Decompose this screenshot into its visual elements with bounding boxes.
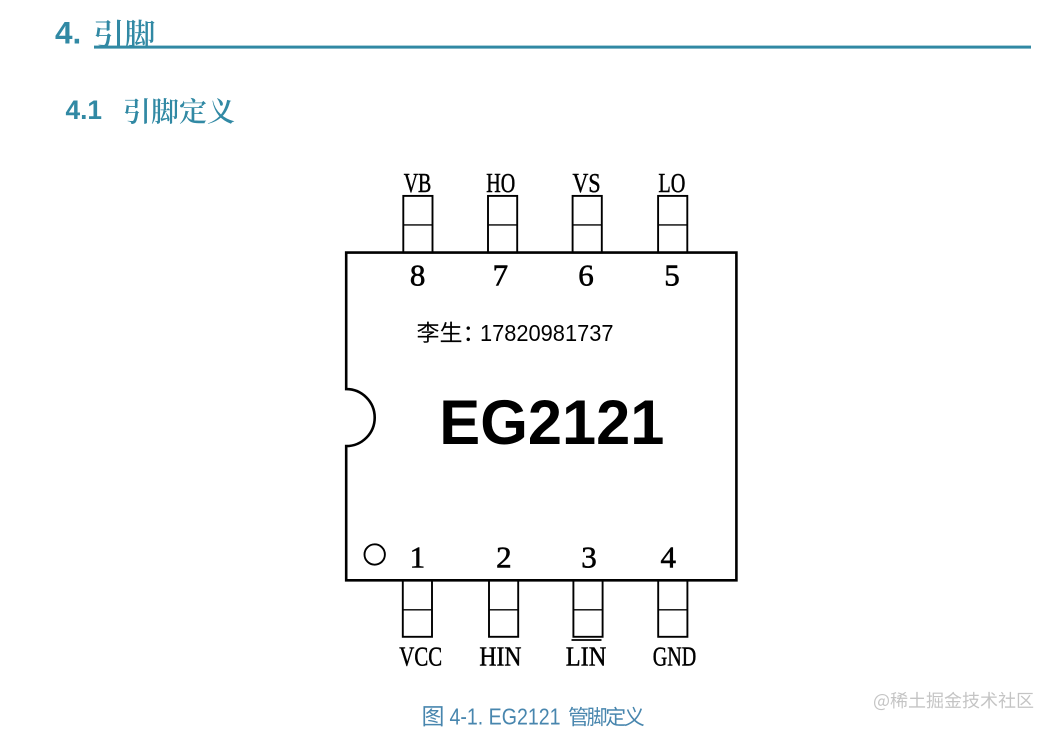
svg-text:8: 8 xyxy=(410,258,426,293)
svg-text:2: 2 xyxy=(496,540,512,575)
svg-text:7: 7 xyxy=(493,258,509,293)
svg-text:VS: VS xyxy=(573,167,601,198)
svg-text:6: 6 xyxy=(578,258,594,293)
svg-text:17820981737: 17820981737 xyxy=(480,320,614,346)
svg-text:3: 3 xyxy=(581,540,597,575)
svg-text:4: 4 xyxy=(661,540,677,575)
svg-text:LO: LO xyxy=(658,167,685,198)
svg-text:HO: HO xyxy=(486,167,515,198)
svg-text:4.1: 4.1 xyxy=(66,95,103,125)
svg-text:1: 1 xyxy=(410,540,426,575)
svg-text:EG2121: EG2121 xyxy=(439,388,664,458)
svg-text:4-1. EG2121: 4-1. EG2121 xyxy=(450,704,561,730)
svg-text:VCC: VCC xyxy=(399,640,442,671)
svg-text:VB: VB xyxy=(404,167,432,198)
svg-text:LIN: LIN xyxy=(566,640,607,671)
svg-text:4.: 4. xyxy=(55,15,81,51)
svg-text:GND: GND xyxy=(653,640,697,671)
svg-text:HIN: HIN xyxy=(479,640,521,671)
svg-text:5: 5 xyxy=(664,258,680,293)
